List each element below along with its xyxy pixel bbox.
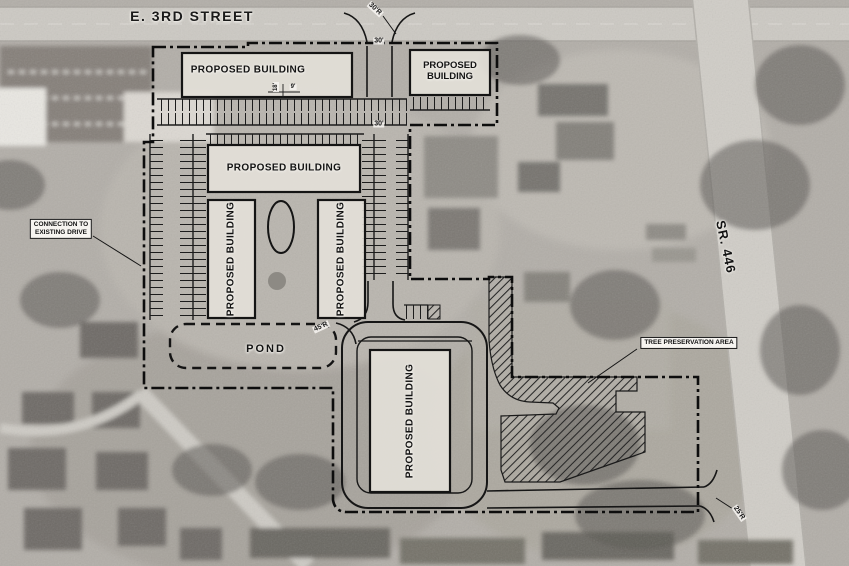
pond-label: POND <box>246 343 286 355</box>
width-30-mid-label: 30' <box>373 121 384 128</box>
street-label-e3rd: E. 3RD STREET <box>130 8 254 24</box>
site-plan-image: E. 3RD STREET SR. 446 PROPOSED BUILDING … <box>0 0 849 566</box>
tree-preservation-hatch <box>489 277 645 482</box>
building-label-mid: PROPOSED BUILDING <box>227 163 342 174</box>
stall-width-label: 9' <box>290 84 297 90</box>
building-label-northeast: PROPOSED BUILDING <box>423 61 477 83</box>
parking-rows-north <box>157 97 490 146</box>
width-30-north-label: 30' <box>373 38 384 45</box>
building-label-north: PROPOSED BUILDING <box>191 65 306 76</box>
building-label-west-wing: PROPOSED BUILDING <box>226 202 237 317</box>
stall-depth-label: 18' <box>273 82 279 92</box>
parking-rows-east <box>362 134 408 280</box>
north-entrance-drive <box>344 13 415 97</box>
south-stalls <box>404 305 440 319</box>
connection-callout-line1: CONNECTION TO <box>34 221 88 229</box>
connection-callout: CONNECTION TO EXISTING DRIVE <box>30 219 92 239</box>
courtyard-shrub <box>268 272 286 290</box>
courtyard-ellipse <box>268 201 294 253</box>
tree-preservation-callout: TREE PRESERVATION AREA <box>640 337 737 349</box>
parking-rows-west <box>150 134 206 320</box>
plan-linework <box>0 0 849 566</box>
connection-callout-line2: EXISTING DRIVE <box>34 229 88 237</box>
building-label-northeast-line2: BUILDING <box>423 72 477 83</box>
building-label-south: PROPOSED BUILDING <box>405 364 416 479</box>
building-label-east-wing: PROPOSED BUILDING <box>336 202 347 317</box>
